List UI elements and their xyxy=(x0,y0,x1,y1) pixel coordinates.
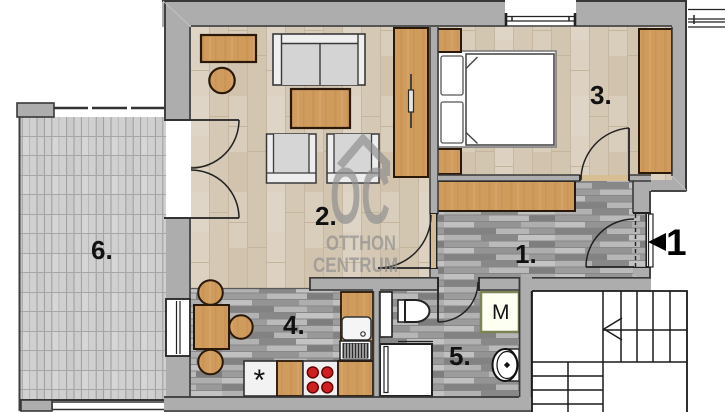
svg-text:5.: 5. xyxy=(449,341,471,371)
svg-text:OTTHON: OTTHON xyxy=(326,232,396,255)
svg-text:6.: 6. xyxy=(91,235,113,265)
svg-text:M: M xyxy=(492,301,510,324)
svg-text:1: 1 xyxy=(666,222,687,263)
svg-text:4.: 4. xyxy=(283,310,305,340)
svg-text:*: * xyxy=(254,364,266,397)
svg-text:OC: OC xyxy=(330,152,390,241)
svg-text:3.: 3. xyxy=(590,80,612,110)
svg-text:1.: 1. xyxy=(515,239,537,269)
svg-text:CENTRUM: CENTRUM xyxy=(313,254,398,277)
